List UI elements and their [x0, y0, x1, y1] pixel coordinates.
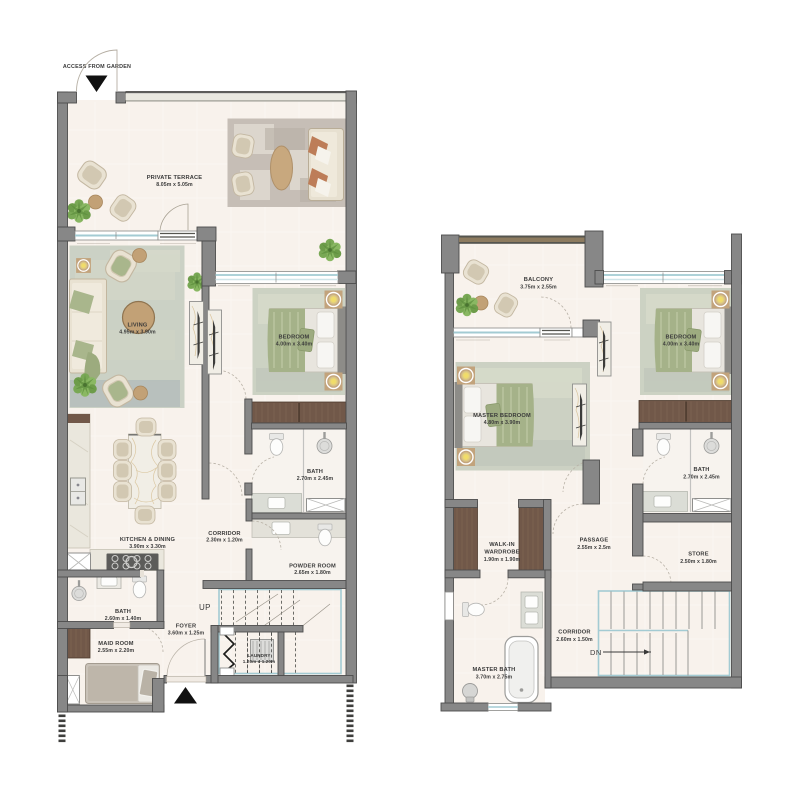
svg-text:8.05m x 5.05m: 8.05m x 5.05m: [156, 182, 193, 188]
svg-text:3.60m x 1.25m: 3.60m x 1.25m: [168, 631, 205, 637]
svg-text:1.90m x 1.90m: 1.90m x 1.90m: [484, 557, 521, 563]
svg-text:ACCESS FROM GARDEN: ACCESS FROM GARDEN: [63, 64, 131, 70]
svg-text:CORRIDOR: CORRIDOR: [208, 531, 240, 537]
svg-text:FOYER: FOYER: [176, 624, 197, 630]
svg-text:2.50m x 1.80m: 2.50m x 1.80m: [680, 559, 717, 565]
svg-text:BATH: BATH: [115, 609, 131, 615]
svg-text:1.20m x 1.20m: 1.20m x 1.20m: [243, 659, 275, 664]
svg-text:4.00m x 3.40m: 4.00m x 3.40m: [276, 342, 313, 348]
svg-text:PRIVATE TERRACE: PRIVATE TERRACE: [147, 175, 203, 181]
svg-text:4.95m x 3.90m: 4.95m x 3.90m: [119, 330, 156, 336]
svg-text:3.90m x 3.30m: 3.90m x 3.30m: [129, 544, 166, 550]
svg-text:MAID ROOM: MAID ROOM: [98, 641, 134, 647]
svg-text:2.70m x 2.45m: 2.70m x 2.45m: [683, 475, 720, 481]
svg-text:UP: UP: [199, 603, 211, 612]
svg-text:4.00m x 3.40m: 4.00m x 3.40m: [663, 342, 700, 348]
svg-text:MASTER BEDROOM: MASTER BEDROOM: [473, 413, 531, 419]
svg-text:2.70m x 2.45m: 2.70m x 2.45m: [297, 476, 334, 482]
svg-text:BALCONY: BALCONY: [524, 277, 553, 283]
svg-text:MASTER BATH: MASTER BATH: [473, 667, 516, 673]
svg-text:DN: DN: [590, 648, 602, 657]
svg-text:3.75m x 2.55m: 3.75m x 2.55m: [520, 285, 557, 291]
svg-text:3.70m x 2.75m: 3.70m x 2.75m: [476, 675, 513, 681]
svg-text:BEDROOM: BEDROOM: [666, 335, 697, 341]
svg-text:4.80m x 3.90m: 4.80m x 3.90m: [484, 420, 521, 426]
svg-text:WARDROBE: WARDROBE: [484, 550, 519, 556]
svg-text:LIVING: LIVING: [127, 323, 147, 329]
svg-text:KITCHEN & DINING: KITCHEN & DINING: [120, 537, 176, 543]
svg-text:LAUNDRY: LAUNDRY: [248, 653, 271, 658]
svg-text:CORRIDOR: CORRIDOR: [558, 630, 590, 636]
svg-text:BEDROOM: BEDROOM: [279, 335, 310, 341]
svg-text:PASSAGE: PASSAGE: [580, 538, 609, 544]
svg-text:WALK-IN: WALK-IN: [489, 542, 515, 548]
svg-text:2.60m x 1.50m: 2.60m x 1.50m: [556, 637, 593, 643]
svg-text:POWDER ROOM: POWDER ROOM: [289, 564, 336, 570]
svg-text:STORE: STORE: [688, 552, 708, 558]
svg-text:2.55m x 2.5m: 2.55m x 2.5m: [577, 545, 611, 551]
svg-text:2.55m x 2.20m: 2.55m x 2.20m: [98, 648, 135, 654]
svg-text:2.30m x 1.20m: 2.30m x 1.20m: [206, 538, 243, 544]
svg-text:BATH: BATH: [693, 467, 709, 473]
svg-text:2.65m x 1.80m: 2.65m x 1.80m: [294, 570, 331, 576]
svg-text:BATH: BATH: [307, 469, 323, 475]
